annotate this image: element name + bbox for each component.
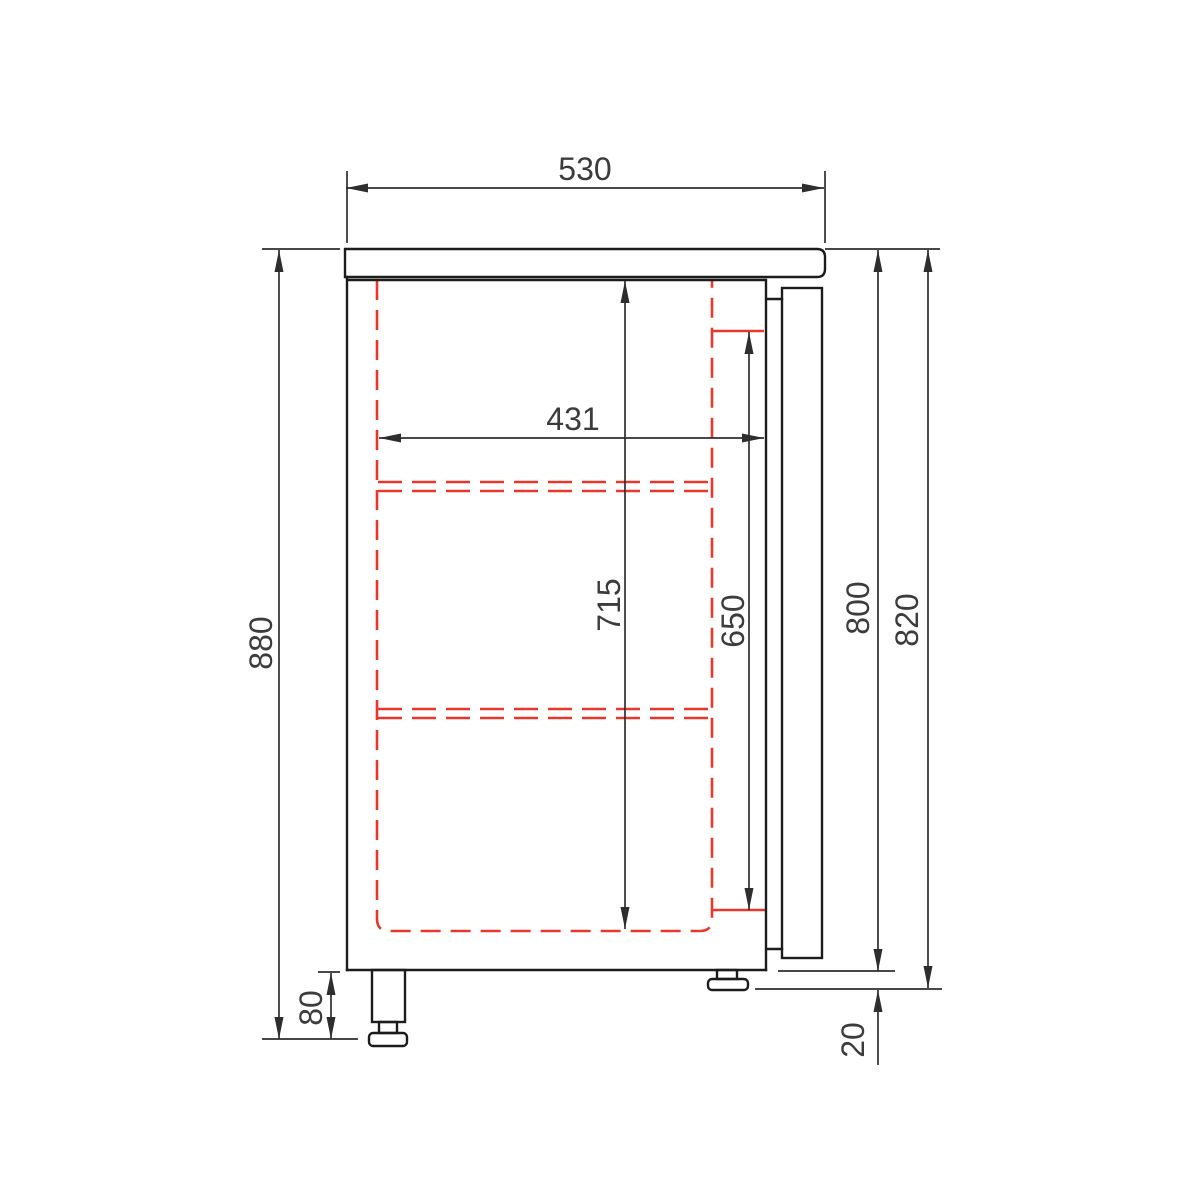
front-leg-stem	[379, 1022, 397, 1033]
arrowhead-right	[802, 184, 824, 193]
dim-label-820: 820	[889, 593, 925, 646]
dim-label-80: 80	[293, 990, 329, 1026]
arrowhead-bottom	[874, 949, 883, 971]
legs	[369, 970, 748, 1046]
dim-label-715: 715	[591, 578, 627, 631]
arrowhead-left	[379, 434, 401, 443]
dim-interior-width: 431	[379, 401, 764, 443]
arrowhead-up	[874, 990, 883, 1012]
dim-label-431: 431	[546, 401, 599, 437]
front-leg-foot	[369, 1033, 407, 1046]
interior-liner-outline	[377, 280, 712, 931]
arrowhead-top	[275, 250, 284, 272]
dim-foot-clearance: 20	[835, 990, 883, 1065]
dim-label-20: 20	[835, 1022, 871, 1058]
arrowhead-right	[742, 434, 764, 443]
cabinet-outline	[345, 249, 825, 970]
arrowhead-top	[924, 250, 933, 272]
arrowhead-bottom	[745, 888, 754, 910]
technical-drawing-page: 530 880 80 431 715 650	[0, 0, 1200, 1200]
countertop	[345, 249, 825, 277]
side-view-technical-drawing: 530 880 80 431 715 650	[0, 0, 1200, 1200]
front-leg-body	[372, 970, 405, 1022]
dim-label-800: 800	[840, 581, 876, 634]
door	[768, 288, 822, 958]
arrowhead-top	[874, 250, 883, 272]
arrowhead-bottom	[924, 966, 933, 988]
dim-label-880: 880	[243, 616, 279, 669]
arrowhead-top	[621, 281, 630, 303]
dim-top-width: 530	[346, 151, 825, 243]
rear-leg-stem	[717, 970, 737, 979]
dim-overall-height: 880	[243, 249, 358, 1039]
arrowhead-bottom	[275, 1017, 284, 1039]
dim-leg-height: 80	[293, 972, 340, 1039]
arrowhead-left	[346, 184, 368, 193]
interior-hidden-lines	[377, 280, 766, 931]
arrowhead-bottom	[621, 907, 630, 929]
dim-interior-height: 715	[591, 281, 630, 929]
door-panel	[782, 288, 822, 958]
arrowhead-top	[745, 332, 754, 354]
dim-label-650: 650	[715, 594, 751, 647]
rear-leg-foot	[708, 979, 748, 990]
dim-label-530: 530	[558, 151, 611, 187]
dim-door-height: 650	[715, 332, 754, 910]
